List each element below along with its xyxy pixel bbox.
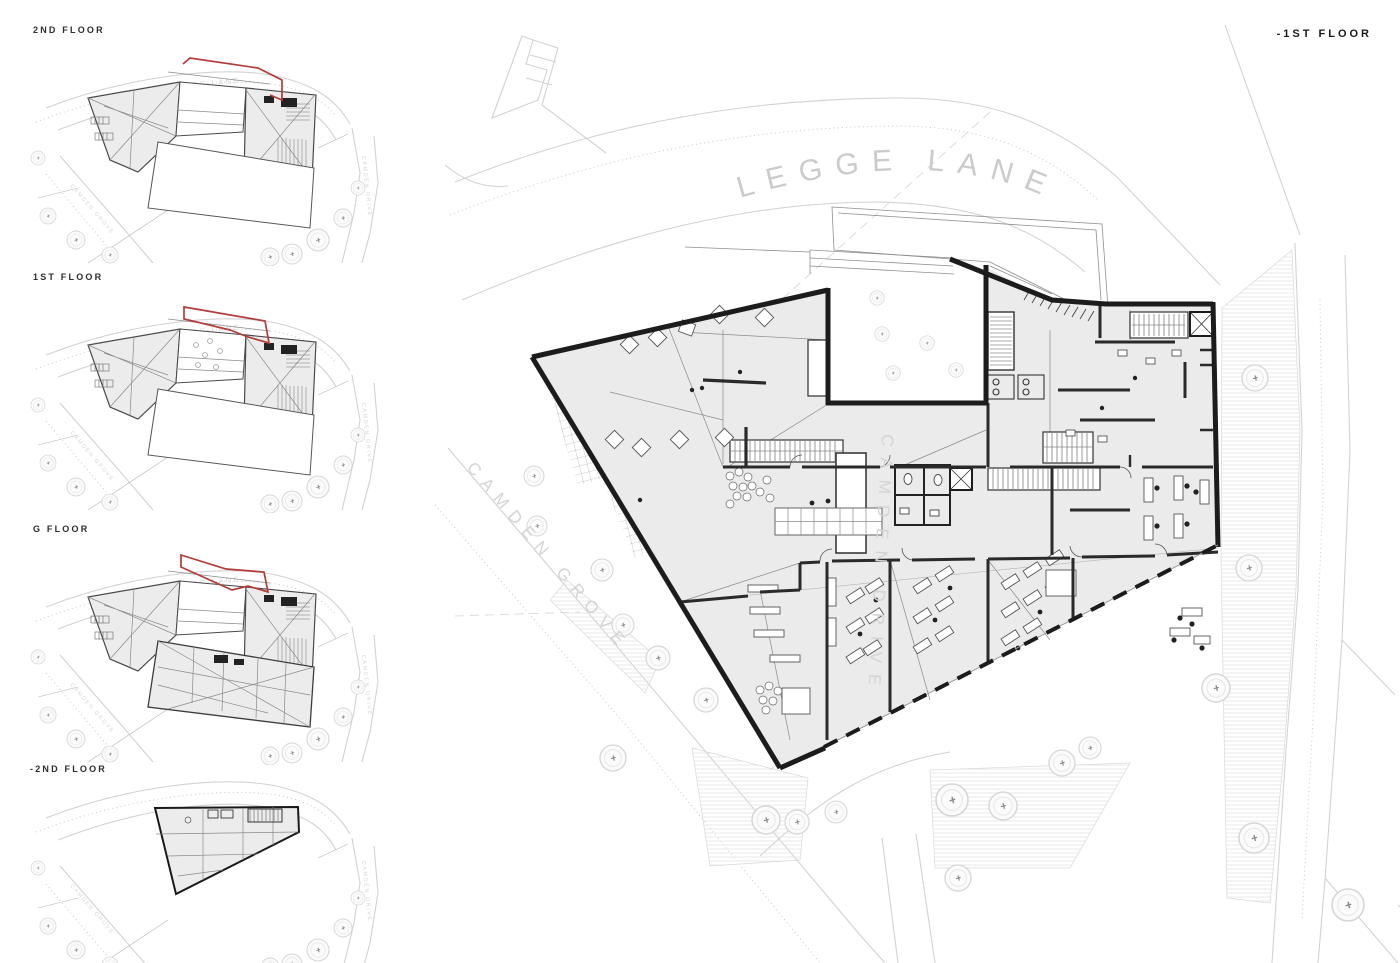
courtyard-trees bbox=[870, 291, 963, 380]
thumbnail-plan-g-floor: LEGGE LANE CAMDEN GROVE CAMDEN DRIVE bbox=[18, 537, 400, 765]
street-label-camden-drive: CAMDEN DRIVE bbox=[360, 861, 372, 923]
street-label-camden-grove: CAMDEN GROVE bbox=[68, 883, 115, 936]
main-plan-drawing: LEGGE LANE CAMDEN GROVE CAMDEN DRIVE bbox=[430, 0, 1400, 963]
street-label-legge-lane-main: LEGGE LANE bbox=[733, 144, 1063, 206]
street-label-camden-grove: CAMDEN GROVE bbox=[68, 430, 115, 483]
floor-label-2nd: 2ND FLOOR bbox=[33, 25, 105, 35]
floor-label-minus2nd: -2ND FLOOR bbox=[30, 764, 107, 774]
entrance-canopy bbox=[685, 207, 1108, 308]
thumbnail-plan-1st-floor: LEGGE LANE CAMDEN GROVE CAMDEN DRIVE bbox=[18, 285, 400, 513]
street-label-camden-grove: CAMDEN GROVE bbox=[68, 682, 115, 735]
street-label-camden-grove: CAMDEN GROVE bbox=[68, 183, 115, 236]
drawing-sheet: 2ND FLOOR LEGGE LANE CAMDEN GROVE CAMDEN… bbox=[0, 0, 1400, 963]
thumbnail-plan-minus-2nd-floor: CAMDEN GROVE CAMDEN DRIVE bbox=[18, 776, 400, 963]
thumbnail-plan-2nd-floor: LEGGE LANE CAMDEN GROVE CAMDEN DRIVE bbox=[18, 38, 400, 266]
floor-label-g: G FLOOR bbox=[33, 524, 89, 534]
floor-label-1st: 1ST FLOOR bbox=[33, 272, 103, 282]
